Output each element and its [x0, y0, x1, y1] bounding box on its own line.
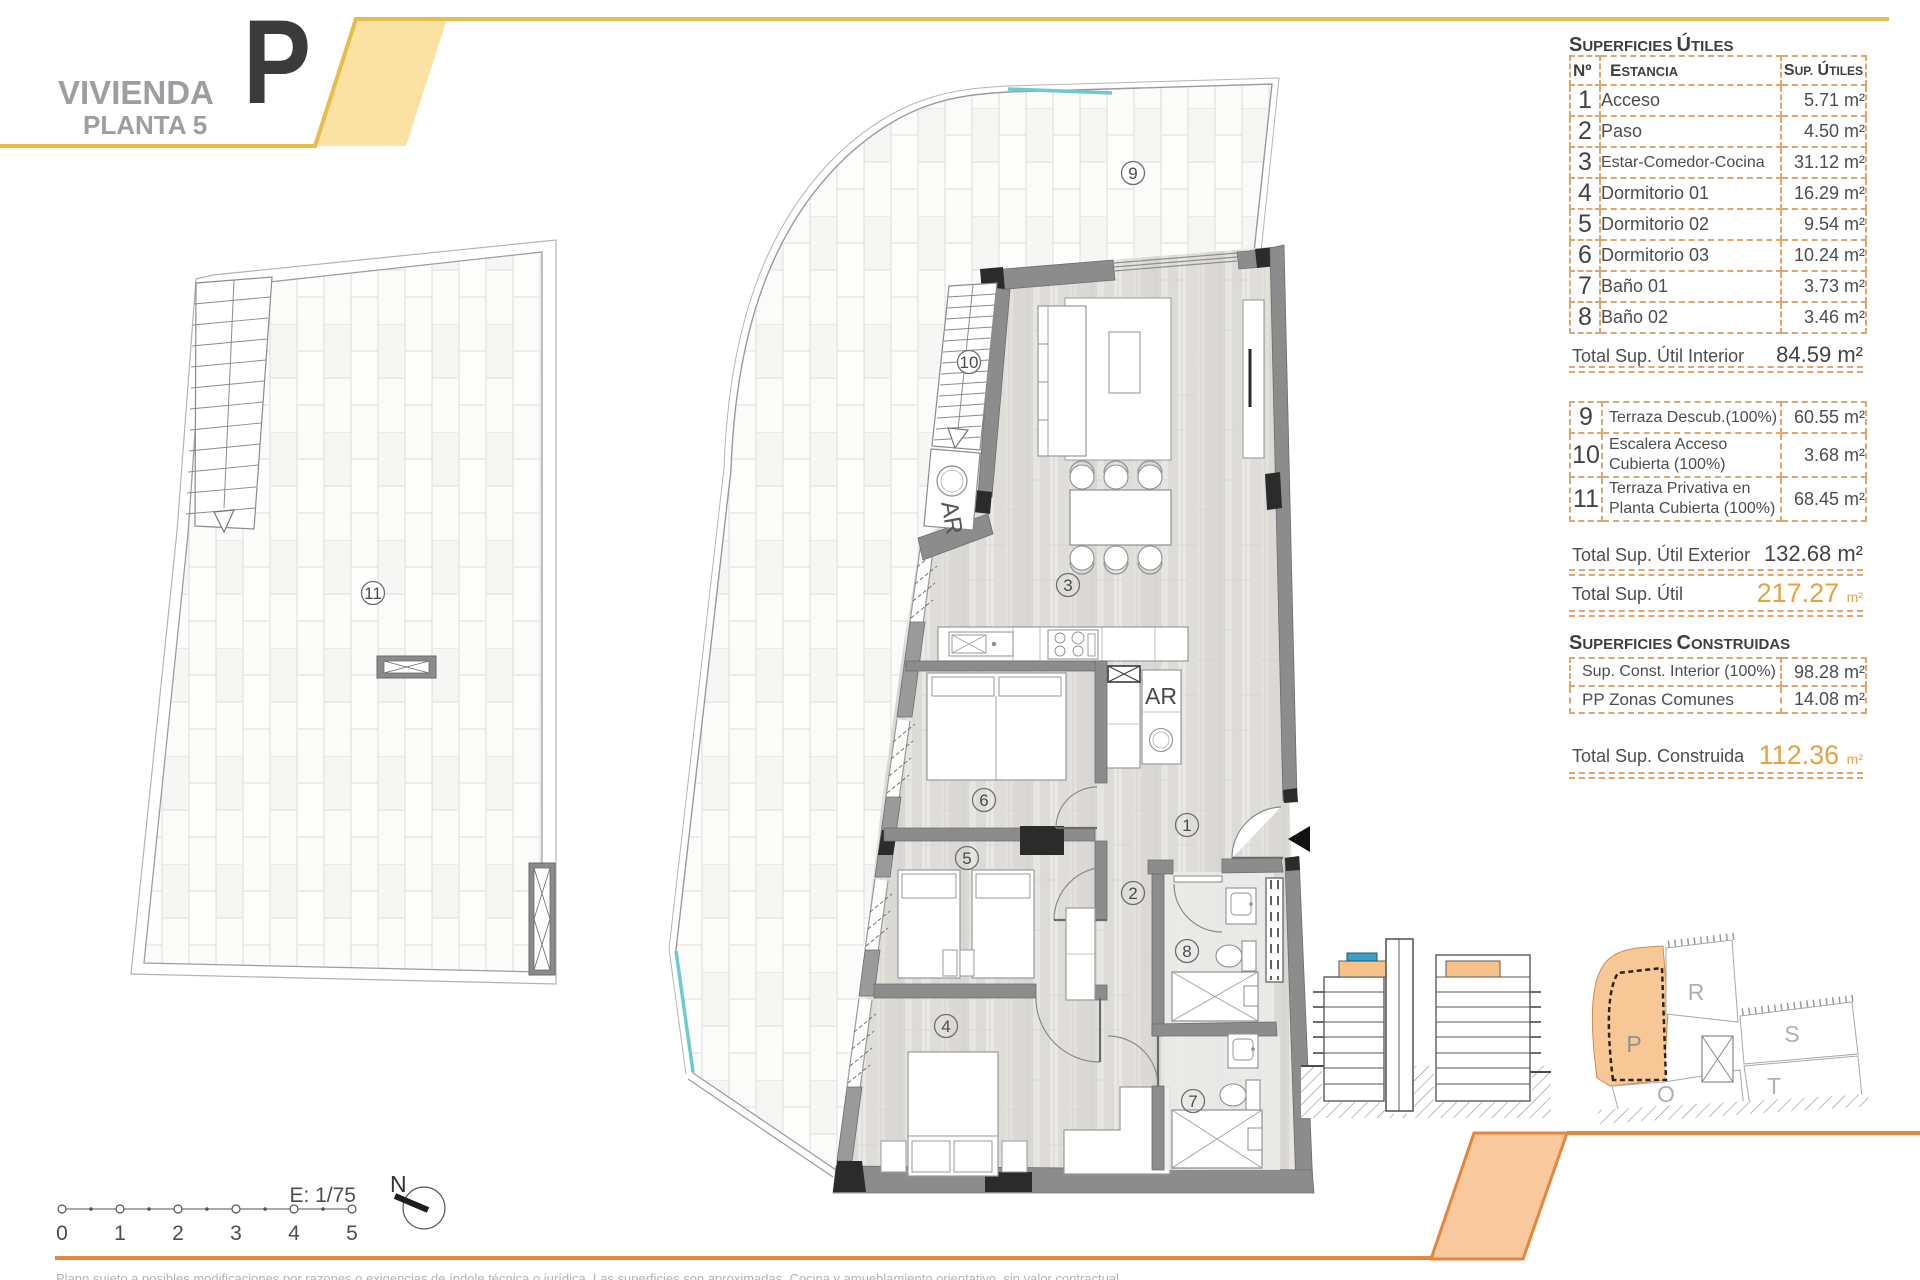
svg-text:T: T — [1767, 1073, 1781, 1099]
svg-text:S: S — [1784, 1021, 1799, 1047]
svg-text:3: 3 — [1063, 576, 1072, 595]
svg-text:4: 4 — [288, 1222, 300, 1245]
svg-text:N: N — [390, 1171, 407, 1197]
svg-text:11: 11 — [364, 584, 382, 603]
svg-text:3: 3 — [230, 1222, 242, 1245]
svg-text:E: 1/75: E: 1/75 — [289, 1184, 356, 1207]
svg-text:5: 5 — [346, 1222, 358, 1245]
svg-text:0: 0 — [56, 1222, 68, 1245]
svg-text:9: 9 — [1128, 164, 1137, 183]
svg-text:AR: AR — [935, 499, 967, 537]
svg-text:1: 1 — [114, 1222, 126, 1245]
svg-text:6: 6 — [979, 791, 988, 810]
svg-text:O: O — [1657, 1081, 1675, 1107]
svg-text:5: 5 — [962, 849, 971, 868]
svg-text:1: 1 — [1182, 816, 1191, 835]
svg-text:8: 8 — [1182, 942, 1191, 961]
svg-text:4: 4 — [941, 1017, 950, 1036]
svg-text:AR: AR — [1145, 683, 1177, 709]
svg-text:10: 10 — [960, 353, 979, 372]
svg-text:2: 2 — [172, 1222, 184, 1245]
svg-text:2: 2 — [1128, 884, 1137, 903]
svg-text:7: 7 — [1188, 1092, 1197, 1111]
svg-text:P: P — [1626, 1031, 1641, 1057]
svg-text:R: R — [1688, 979, 1705, 1005]
